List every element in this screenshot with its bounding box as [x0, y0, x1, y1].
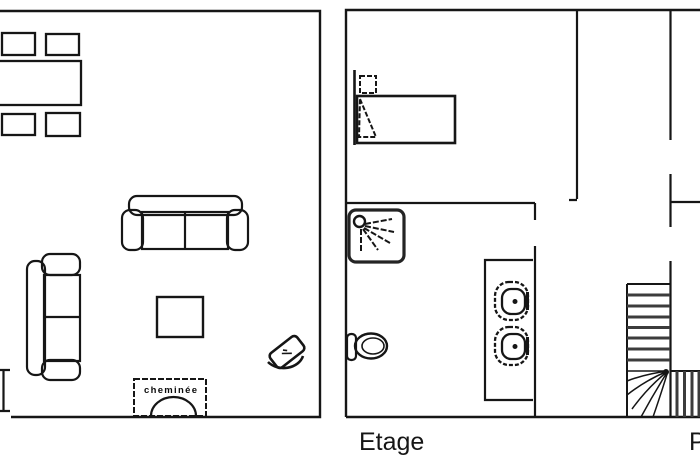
svg-text:Etage: Etage — [359, 428, 424, 456]
svg-text:cheminée: cheminée — [144, 385, 197, 396]
svg-text:P: P — [689, 428, 700, 456]
